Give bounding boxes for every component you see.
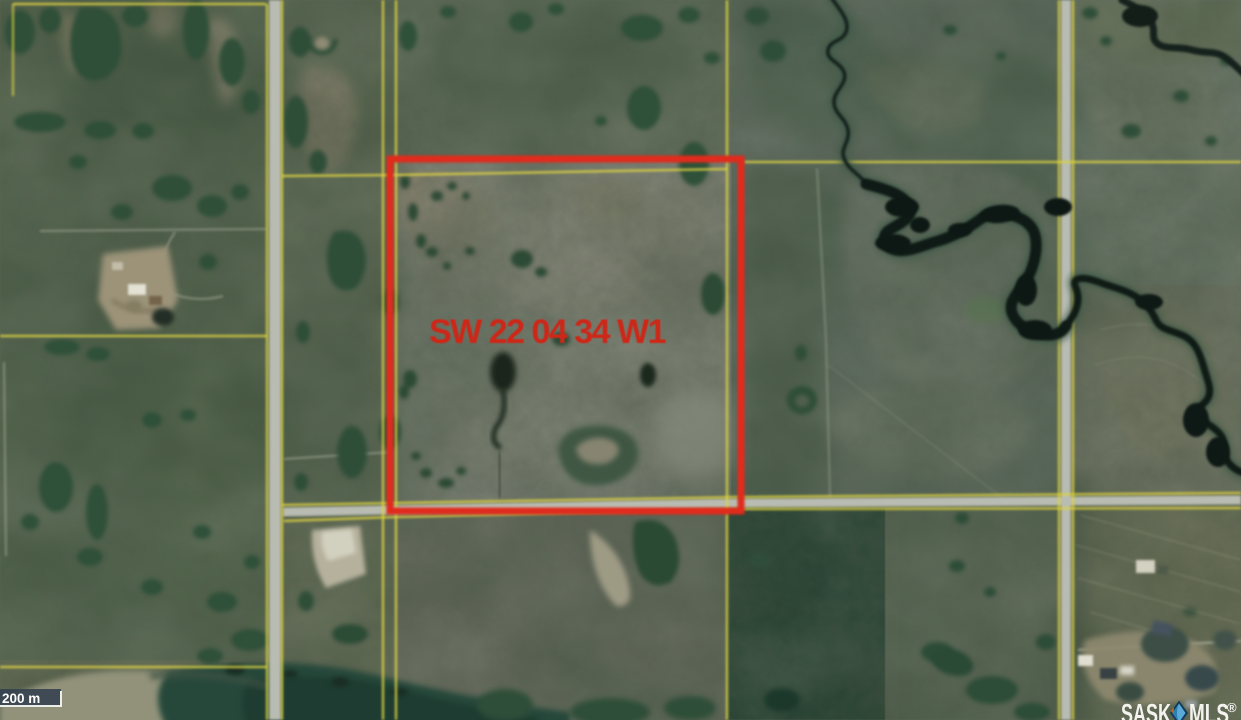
svg-text:MLS: MLS [1189, 698, 1229, 720]
svg-text:SASK: SASK [1121, 698, 1171, 720]
svg-text:200 m: 200 m [2, 691, 40, 706]
svg-text:®: ® [1227, 700, 1237, 715]
svg-text:SW 22 04 34 W1: SW 22 04 34 W1 [429, 313, 666, 351]
